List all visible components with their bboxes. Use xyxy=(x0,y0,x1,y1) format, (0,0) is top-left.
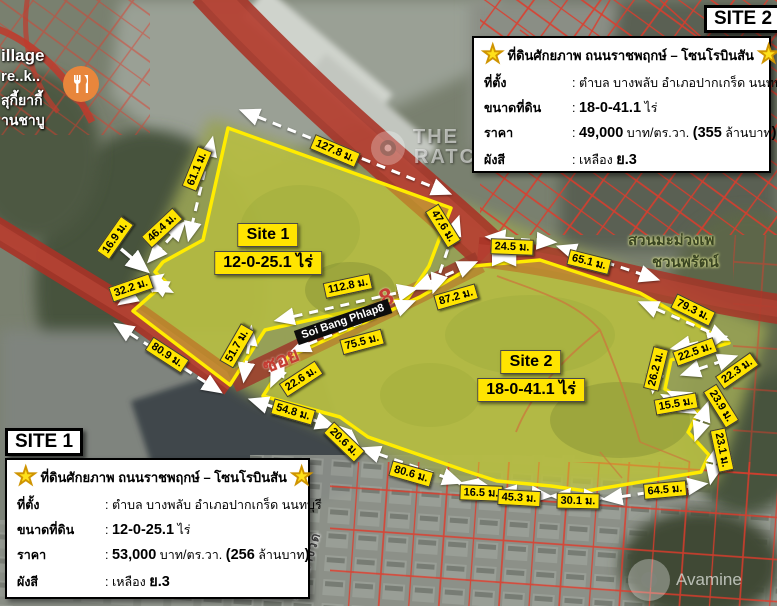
info-row-value: : เหลือง ย.3 xyxy=(572,148,761,171)
info-row-value: : ตำบล บางพลับ อำเภอปากเกร็ด นนทบุรี xyxy=(572,73,777,93)
measurement-label-m75_5: 75.5 ม. xyxy=(339,329,384,356)
star-icon: ★ xyxy=(15,466,37,488)
village-label-line4: านชาบู xyxy=(1,110,45,132)
measurement-label-m64_5: 64.5 ม. xyxy=(643,480,687,500)
star-icon: ★ xyxy=(758,44,777,66)
info-row: ราคา: 53,000 บาท/ตร.วา. (256 ล้านบาท) xyxy=(17,545,300,565)
info-row: ขนาดที่ดิน: 18-0-41.1 ไร่ xyxy=(484,98,761,118)
info-row-value: : 12-0-25.1 ไร่ xyxy=(105,520,300,540)
measurement-label-m61_1: 61.1 ม. xyxy=(182,146,213,192)
measurement-label-m22_5: 22.5 ม. xyxy=(672,337,718,367)
site2-header: SITE 2 xyxy=(704,5,777,33)
measurement-label-m51_7: 51.7 ม. xyxy=(219,323,254,368)
measurement-label-m65_1: 65.1 ม. xyxy=(566,249,611,275)
measurement-label-m23_9: 23.9 ม. xyxy=(703,384,739,429)
info-row-label: ที่ตั้ง xyxy=(484,73,572,93)
info-row-label: ขนาดที่ดิน xyxy=(484,98,572,118)
measurement-label-m22_3: 22.3 ม. xyxy=(715,352,759,390)
site1-name: Site 1 xyxy=(238,223,299,247)
measurement-label-m20_6: 20.6 ม. xyxy=(323,421,365,462)
site2-info-title-row: ★ ที่ดินศักยภาพ ถนนราชพฤกษ์ – โซนโรบินสั… xyxy=(482,44,761,66)
map-overlay: THE RATC Avamine illage re..k.. สุกี้ยาก… xyxy=(0,0,777,606)
village-label-line3: สุกี้ยากี้ xyxy=(1,90,43,112)
info-row-label: ผังสี xyxy=(17,572,105,592)
star-icon: ★ xyxy=(291,466,313,488)
measurement-label-m30_1: 30.1 ม. xyxy=(556,493,599,510)
info-row-label: ราคา xyxy=(484,123,572,143)
measurement-label-m23_1: 23.1 ม. xyxy=(710,427,735,472)
measurement-label-m46_4: 46.4 ม. xyxy=(141,208,183,249)
measurement-label-m112_8: 112.8 ม. xyxy=(323,273,374,299)
measurement-label-m16_9: 16.9 ม. xyxy=(96,216,134,260)
info-row-value: : 18-0-41.1 ไร่ xyxy=(572,98,761,118)
measurement-label-m87_2: 87.2 ม. xyxy=(433,283,479,310)
info-row-value: : 49,000 บาท/ตร.วา. (355 ล้านบาท) xyxy=(572,123,777,143)
measurement-label-m45_3: 45.3 ม. xyxy=(497,489,541,507)
info-row-value: : เหลือง ย.3 xyxy=(105,570,300,593)
garden-label-line2: ชวนพรัตน์ xyxy=(652,250,719,274)
measurement-label-m16_5: 16.5 ม. xyxy=(459,484,502,501)
site2-info-title: ที่ดินศักยภาพ ถนนราชพฤกษ์ – โซนโรบินสัน xyxy=(508,45,754,66)
info-row: ผังสี: เหลือง ย.3 xyxy=(484,148,761,171)
site1-info-title-row: ★ ที่ดินศักยภาพ ถนนราชพฤกษ์ – โซนโรบินสั… xyxy=(15,466,300,488)
star-icon: ★ xyxy=(482,44,504,66)
site1-area: 12-0-25.1 ไร่ xyxy=(214,251,322,275)
site1-label: Site 1 12-0-25.1 ไร่ xyxy=(214,221,322,277)
info-row-label: ผังสี xyxy=(484,150,572,170)
measurement-label-m15_5: 15.5 ม. xyxy=(654,392,699,415)
info-row-label: ที่ตั้ง xyxy=(17,495,105,515)
info-row-label: ราคา xyxy=(17,545,105,565)
measurement-label-m80_6: 80.6 ม. xyxy=(388,460,434,487)
site1-info-title: ที่ดินศักยภาพ ถนนราชพฤกษ์ – โซนโรบินสัน xyxy=(41,467,287,488)
info-row: ผังสี: เหลือง ย.3 xyxy=(17,570,300,593)
site1-info-panel: ★ ที่ดินศักยภาพ ถนนราชพฤกษ์ – โซนโรบินสั… xyxy=(5,458,310,599)
site2-name: Site 2 xyxy=(501,350,562,374)
measurement-label-m127_8: 127.8 ม. xyxy=(309,134,360,168)
avamine-watermark: Avamine xyxy=(676,570,742,590)
site1-info-rows: ที่ตั้ง: ตำบล บางพลับ อำเภอปากเกร็ด นนทบ… xyxy=(15,495,300,593)
measurement-label-m26_2: 26.2 ม. xyxy=(643,346,669,391)
info-row-value: : ตำบล บางพลับ อำเภอปากเกร็ด นนทบุรี xyxy=(105,495,322,515)
land-map-screenshot: THE RATC Avamine illage re..k.. สุกี้ยาก… xyxy=(0,0,777,606)
watermark-text-line2: RATC xyxy=(414,146,476,169)
site2-info-rows: ที่ตั้ง: ตำบล บางพลับ อำเภอปากเกร็ด นนทบ… xyxy=(482,73,761,171)
measurement-label-m54_8: 54.8 ม. xyxy=(270,398,316,425)
village-label-line2: re..k.. xyxy=(1,68,40,85)
site1-header: SITE 1 xyxy=(5,428,83,456)
measurement-label-m32_2: 32.2 ม. xyxy=(108,273,154,302)
measurement-label-m79_3: 79.3 ม. xyxy=(670,293,715,326)
info-row: ที่ตั้ง: ตำบล บางพลับ อำเภอปากเกร็ด นนทบ… xyxy=(484,73,761,93)
measurement-label-m47_6: 47.6 ม. xyxy=(425,204,461,249)
site2-info-panel: ★ ที่ดินศักยภาพ ถนนราชพฤกษ์ – โซนโรบินสั… xyxy=(472,36,771,173)
measurement-label-m24_5: 24.5 ม. xyxy=(490,238,533,255)
info-row: ราคา: 49,000 บาท/ตร.วา. (355 ล้านบาท) xyxy=(484,123,761,143)
garden-label-line1: สวนมะม่วงเพ xyxy=(628,228,714,252)
info-row: ขนาดที่ดิน: 12-0-25.1 ไร่ xyxy=(17,520,300,540)
measurement-label-m80_9: 80.9 ม. xyxy=(145,337,190,374)
info-row-label: ขนาดที่ดิน xyxy=(17,520,105,540)
info-row-value: : 53,000 บาท/ตร.วา. (256 ล้านบาท) xyxy=(105,545,310,565)
site2-area: 18-0-41.1 ไร่ xyxy=(477,378,585,402)
info-row: ที่ตั้ง: ตำบล บางพลับ อำเภอปากเกร็ด นนทบ… xyxy=(17,495,300,515)
site2-label: Site 2 18-0-41.1 ไร่ xyxy=(477,348,585,404)
village-label-line1: illage xyxy=(1,46,44,66)
